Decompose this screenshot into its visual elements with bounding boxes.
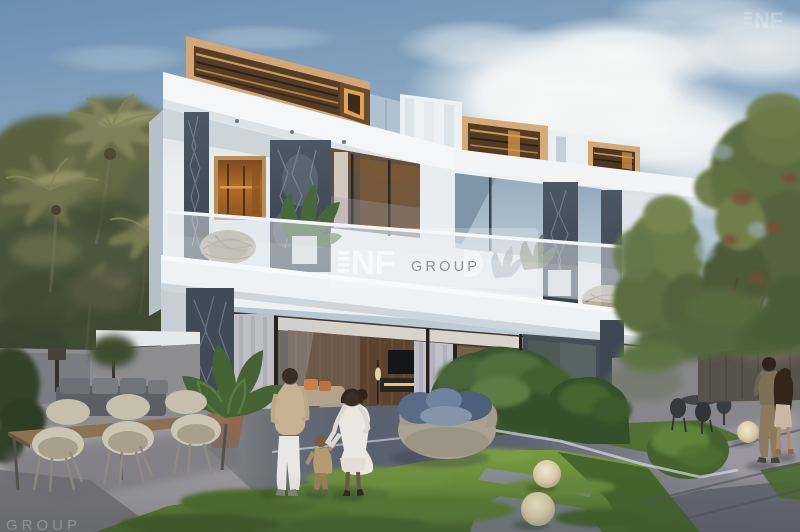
svg-text:NF: NF bbox=[754, 8, 783, 33]
svg-text:GROUP: GROUP bbox=[411, 259, 480, 275]
svg-text:NF: NF bbox=[351, 244, 395, 281]
